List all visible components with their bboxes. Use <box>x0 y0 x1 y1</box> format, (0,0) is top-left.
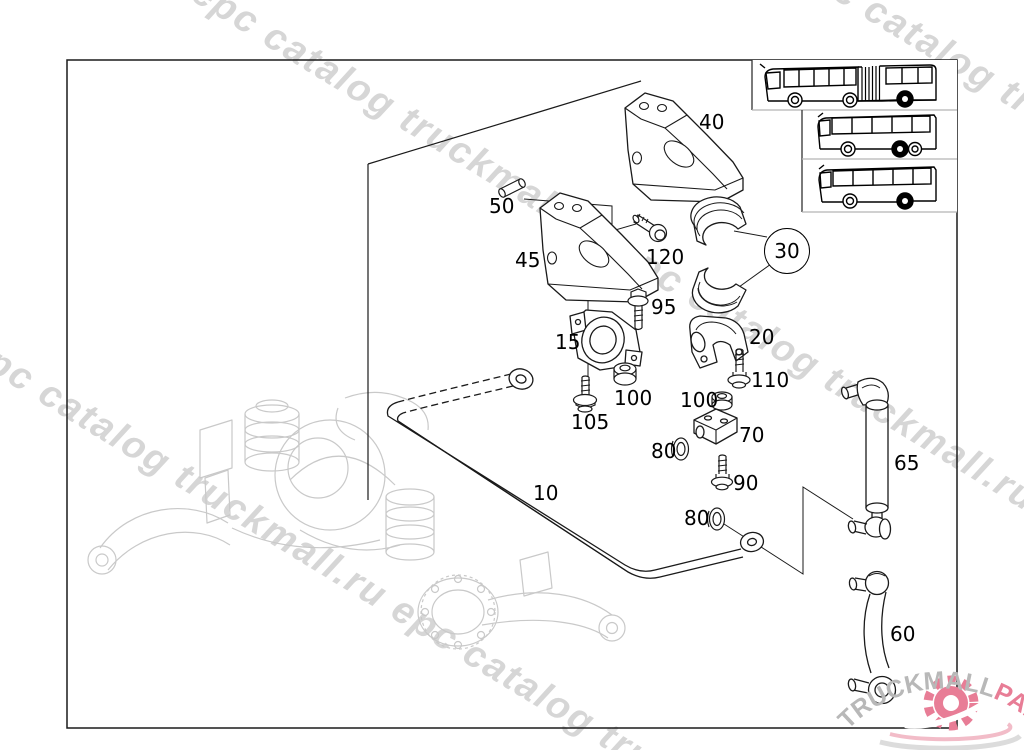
callout-90-14[interactable]: 90 <box>733 473 758 493</box>
callout-70-12[interactable]: 70 <box>739 425 764 445</box>
callout-30-4[interactable]: 30 <box>764 228 810 274</box>
callout-110-10[interactable]: 110 <box>751 370 789 390</box>
callout-10-16[interactable]: 10 <box>533 483 558 503</box>
callout-95-5[interactable]: 95 <box>651 297 676 317</box>
callout-20-9[interactable]: 20 <box>749 327 774 347</box>
callout-15-6[interactable]: 15 <box>555 332 580 352</box>
callout-100-7[interactable]: 100 <box>614 388 652 408</box>
callout-80-13[interactable]: 80 <box>651 441 676 461</box>
callout-40-0[interactable]: 40 <box>699 112 724 132</box>
parts-diagram-page: truckmall.ru epc catalog truckmall.ru ep… <box>0 0 1024 750</box>
callout-65-17[interactable]: 65 <box>894 453 919 473</box>
callout-80-15[interactable]: 80 <box>684 508 709 528</box>
callout-120-3[interactable]: 120 <box>646 247 684 267</box>
callout-60-18[interactable]: 60 <box>890 624 915 644</box>
callout-105-8[interactable]: 105 <box>571 412 609 432</box>
callout-45-2[interactable]: 45 <box>515 250 540 270</box>
callout-layer: 4050451203095151001052011010070809080106… <box>0 0 1024 750</box>
callout-50-1[interactable]: 50 <box>489 196 514 216</box>
callout-100-11[interactable]: 100 <box>680 390 718 410</box>
